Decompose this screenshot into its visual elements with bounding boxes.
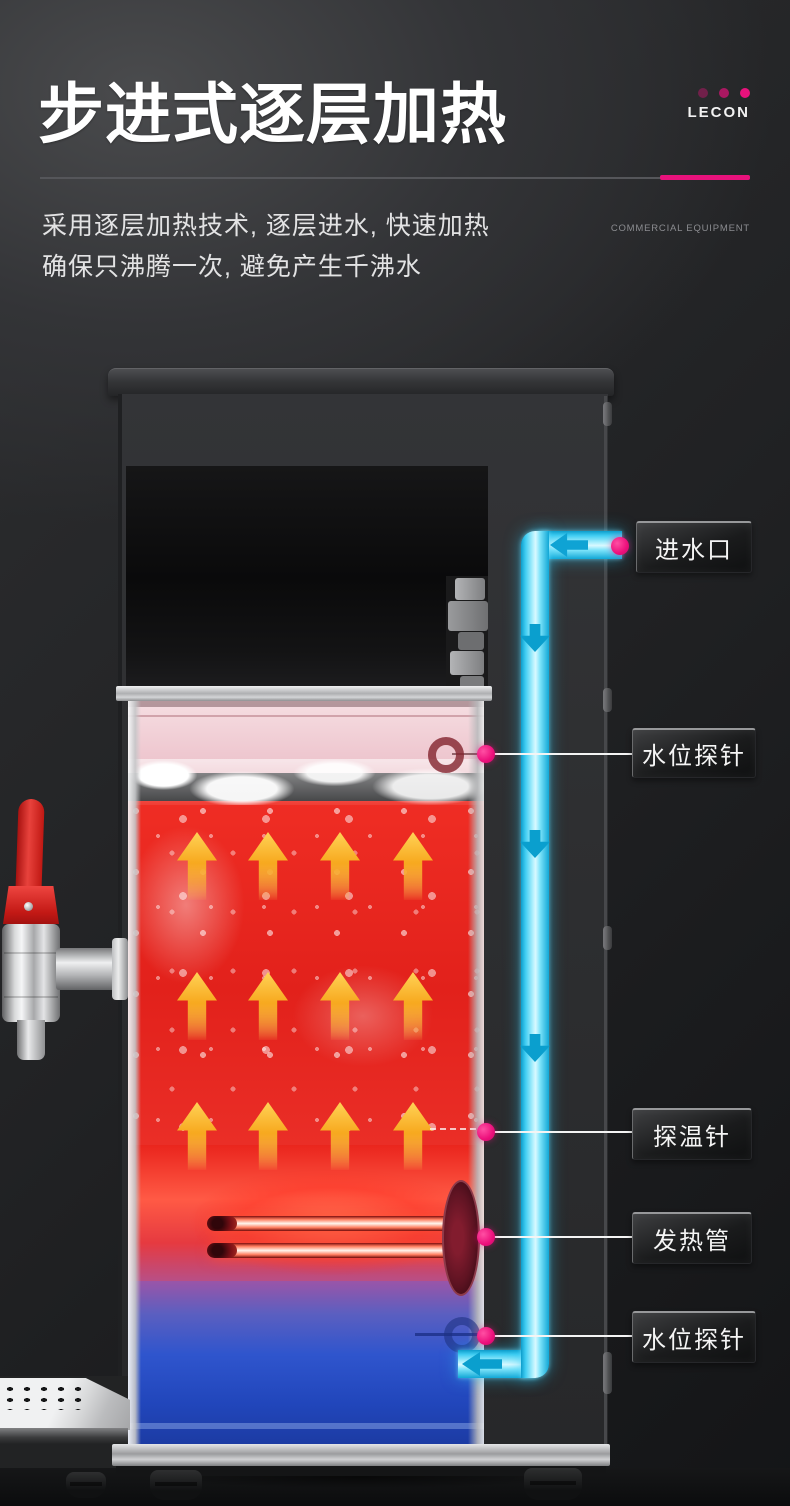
machine-top-bar [108,368,614,396]
description-line-2: 确保只沸腾一次, 避免产生千沸水 [42,247,562,288]
machine-foot [524,1468,582,1500]
callout-label-heating-tube: 发热管 [632,1212,752,1264]
promo-page: 步进式逐层加热 LECON 采用逐层加热技术, 逐层进水, 快速加热 确保只沸腾… [0,0,790,1506]
hinge-detail [603,1352,612,1394]
drip-tray-front [0,1428,128,1444]
tank-floor-highlight [128,1423,484,1429]
tank-top-rim [116,686,492,701]
callout-line [486,753,634,755]
tank-left-wall [128,701,141,1445]
water-level-probe-bottom [444,1317,480,1353]
callout-label-water-level-top: 水位探针 [632,728,756,778]
callout-dot [477,1228,495,1246]
hinge-detail [603,402,612,426]
callout-dot [477,1327,495,1345]
callout-label-temp-probe: 探温针 [632,1108,752,1160]
callout-dot [611,537,629,555]
page-title: 步进式逐层加热 [38,72,598,158]
heating-tube [210,1243,462,1258]
machine-base [112,1444,610,1466]
tank-inner-shadow [128,701,484,707]
faucet-arm [56,948,118,990]
machine-foot [150,1470,202,1500]
faucet-seam [4,952,58,954]
faucet-flange [112,938,128,1000]
cabinet-left-edge [118,394,122,1450]
pump-part [448,601,488,631]
pump-part [455,578,485,600]
boiling-foam [128,759,484,805]
hinge-detail [603,688,612,712]
callout-label-water-level-bottom: 水位探针 [632,1311,756,1363]
divider-line [40,177,660,179]
cabinet-recess [126,466,488,692]
faucet-screw [24,902,33,911]
divider-accent [660,175,750,180]
pump-part [458,632,484,650]
pump-part [450,651,484,675]
tank-glass-line [128,715,484,717]
faucet-seam [4,996,58,998]
callout-dot [477,745,495,763]
three-dots-icon [698,88,750,98]
description-line-1: 采用逐层加热技术, 逐层进水, 快速加热 [42,206,562,247]
faucet-spout [17,1020,45,1060]
description: 采用逐层加热技术, 逐层进水, 快速加热 确保只沸腾一次, 避免产生千沸水 [42,206,562,288]
brand-logo: LECON [688,104,751,121]
drip-tray-holes [2,1384,86,1410]
heating-flange [442,1180,480,1296]
foam-patch [278,941,448,1091]
machine-foot [66,1472,106,1498]
hinge-detail [603,926,612,950]
faucet-body [2,924,60,1022]
callout-line [490,1236,634,1238]
callout-label-inlet: 进水口 [636,521,752,573]
callout-dot [477,1123,495,1141]
water-level-probe-top [428,737,464,773]
callout-line [486,1131,634,1133]
brand-tagline: COMMERCIAL EQUIPMENT [611,223,750,234]
flow-pipe-vertical [521,531,549,1378]
callout-line [486,1335,634,1337]
heating-tube [210,1216,462,1231]
faucet-handle [15,799,44,896]
cold-water-layer [128,1281,484,1445]
